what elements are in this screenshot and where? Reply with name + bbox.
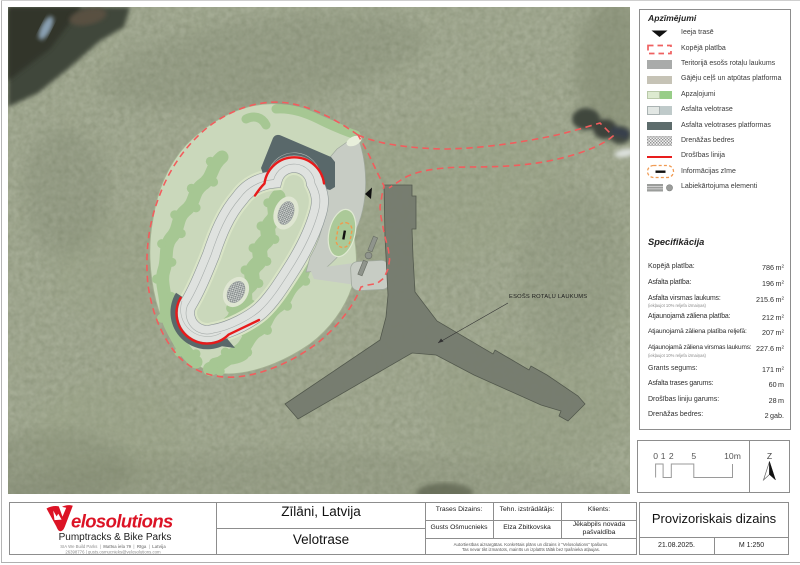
svg-text:0: 0 xyxy=(653,451,658,461)
svg-text:ESOŠS ROTAĻU LAUKUMS: ESOŠS ROTAĻU LAUKUMS xyxy=(509,293,587,300)
svg-text:elosolutions: elosolutions xyxy=(71,511,173,532)
svg-text:5: 5 xyxy=(691,451,696,461)
svg-text:Pumptracks & Bike Parks: Pumptracks & Bike Parks xyxy=(59,532,172,543)
svg-text:2: 2 xyxy=(669,451,674,461)
svg-text:26398776 | gusts.osmucnieks@ve: 26398776 | gusts.osmucnieks@velosolution… xyxy=(65,550,161,555)
svg-text:Z: Z xyxy=(767,451,772,461)
svg-text:1: 1 xyxy=(661,451,666,461)
svg-text:SIA We Build Parks | Matīsa: SIA We Build Parks | Matīsa iela 79 | Rī… xyxy=(60,544,166,549)
svg-text:10m: 10m xyxy=(724,451,741,461)
